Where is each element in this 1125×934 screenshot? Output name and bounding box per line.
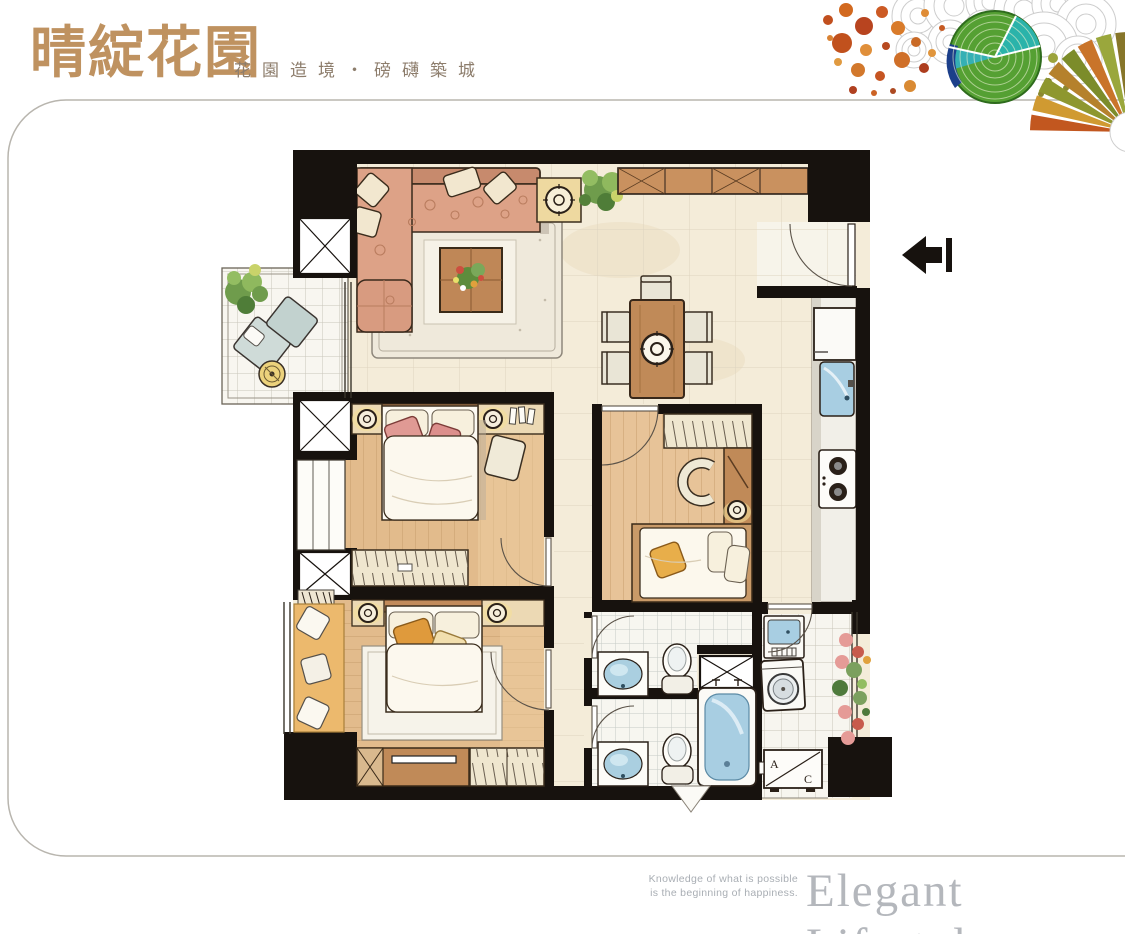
toilet-icon xyxy=(662,734,693,784)
master-wardrobe xyxy=(470,748,544,786)
footer-slogan: Elegant Lifestyle xyxy=(806,864,1125,934)
coffee-table xyxy=(424,240,516,324)
ac-label-a: A xyxy=(770,757,779,771)
tagline-line1: Knowledge of what is possible xyxy=(600,872,798,886)
stove-icon xyxy=(819,450,856,508)
side-table-lamp xyxy=(537,178,581,222)
lamp-icon xyxy=(358,410,376,428)
shaft-x-icon xyxy=(299,552,351,596)
tv-icon xyxy=(392,756,456,763)
lamp-icon xyxy=(728,501,746,519)
kitchen xyxy=(812,292,856,602)
shaft-x-icon xyxy=(299,218,351,274)
page-title: 晴綻花園 xyxy=(30,26,262,82)
wardrobe2 xyxy=(352,550,468,586)
toilet-icon xyxy=(662,644,693,694)
balcony-side-table-icon xyxy=(259,361,285,387)
master-bay-window xyxy=(284,602,290,734)
page-subtitle: 花園造境・磅礴築城 xyxy=(234,56,486,81)
sink-icon xyxy=(598,652,648,696)
shaft-x-icon xyxy=(299,400,351,452)
floorplan: A C xyxy=(222,150,952,812)
washing-machine-icon xyxy=(761,659,806,711)
shelf-books-icon xyxy=(509,407,535,425)
brochure-canvas: A C xyxy=(0,0,1125,934)
ac-label-c: C xyxy=(804,772,812,786)
tv-cabinet xyxy=(357,748,469,786)
sink-icon xyxy=(598,742,648,786)
entry-cabinet xyxy=(618,168,808,194)
kitchen-sink-icon xyxy=(820,362,854,416)
shaft-x-icon xyxy=(700,656,754,688)
balcony xyxy=(222,264,348,404)
ac-unit: A C xyxy=(759,750,822,792)
bathtub-icon xyxy=(698,680,756,786)
lamp-icon xyxy=(359,604,377,622)
entry-arrow-icon xyxy=(902,236,952,274)
tagline-line2: is the beginning of happiness. xyxy=(600,886,798,900)
bed3 xyxy=(632,524,752,602)
footer-tagline: Knowledge of what is possible is the beg… xyxy=(600,872,798,900)
master-bed xyxy=(386,606,482,712)
lamp-icon xyxy=(484,410,502,428)
lamp-icon xyxy=(546,187,572,213)
window-seat xyxy=(294,604,344,732)
bed2 xyxy=(382,406,486,520)
bathroom-upper xyxy=(598,644,693,696)
bedroom2-closet xyxy=(297,460,345,550)
lamp-icon xyxy=(488,604,506,622)
wardrobe3 xyxy=(664,414,752,448)
